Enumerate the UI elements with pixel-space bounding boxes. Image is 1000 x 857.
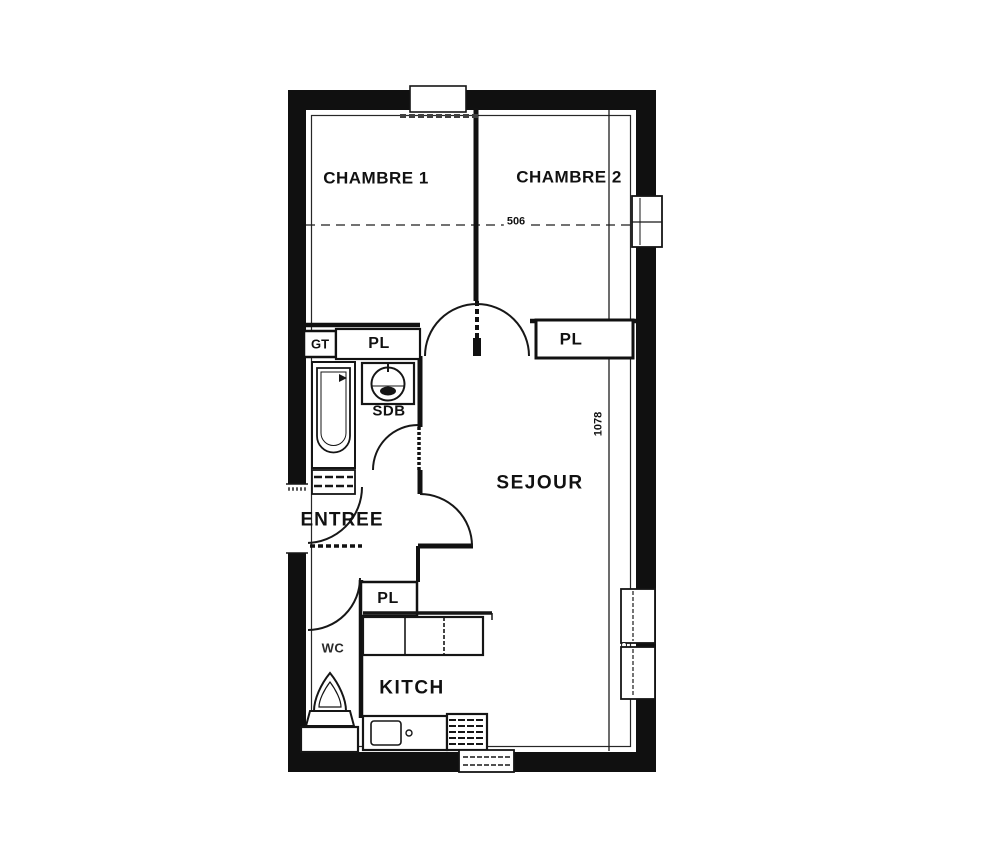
vent-bottom [459, 750, 514, 772]
closet-label-kitchen: PL [377, 591, 398, 607]
room-label-entree: ENTREE [300, 511, 383, 530]
dimension-label-depth: 1078 [594, 409, 605, 439]
closet-label-sejour: PL [560, 331, 583, 348]
cooker [447, 714, 487, 750]
window-living-2 [621, 647, 655, 699]
bathroom-door-arc [373, 425, 418, 470]
bathtub-shelf [312, 470, 355, 494]
closet-sejour-box [536, 320, 633, 358]
dimension-label-width: 506 [504, 217, 528, 228]
kitchen-counter [363, 613, 492, 655]
washbasin-drain-icon [380, 387, 396, 396]
room-label-kitchen: KITCH [379, 679, 445, 698]
floor-plan-drawing [0, 0, 1000, 857]
kitchen-tap-icon [406, 730, 412, 736]
window-living-1 [621, 589, 655, 643]
washbasin [362, 363, 414, 404]
kitchen-sink [363, 716, 447, 750]
wc-door-arc [308, 578, 360, 630]
toilet [306, 673, 354, 726]
bathtub [312, 362, 355, 468]
floor-plan: CHAMBRE 1 CHAMBRE 2 506 1078 GT PL PL SD… [0, 0, 1000, 857]
double-door-handle [473, 338, 481, 356]
room-label-chambre1: CHAMBRE 1 [323, 170, 429, 187]
living-door-arc [420, 494, 472, 546]
room-label-wc: WC [322, 642, 345, 655]
label-duct-gt: GT [311, 338, 329, 351]
room-label-sdb: SDB [372, 404, 405, 419]
window-bedroom2 [632, 196, 662, 247]
wc-cabinet [301, 727, 358, 752]
room-label-sejour: SEJOUR [496, 474, 583, 493]
room-label-chambre2: CHAMBRE 2 [516, 169, 622, 186]
closet-label-bathroom: PL [368, 336, 389, 352]
